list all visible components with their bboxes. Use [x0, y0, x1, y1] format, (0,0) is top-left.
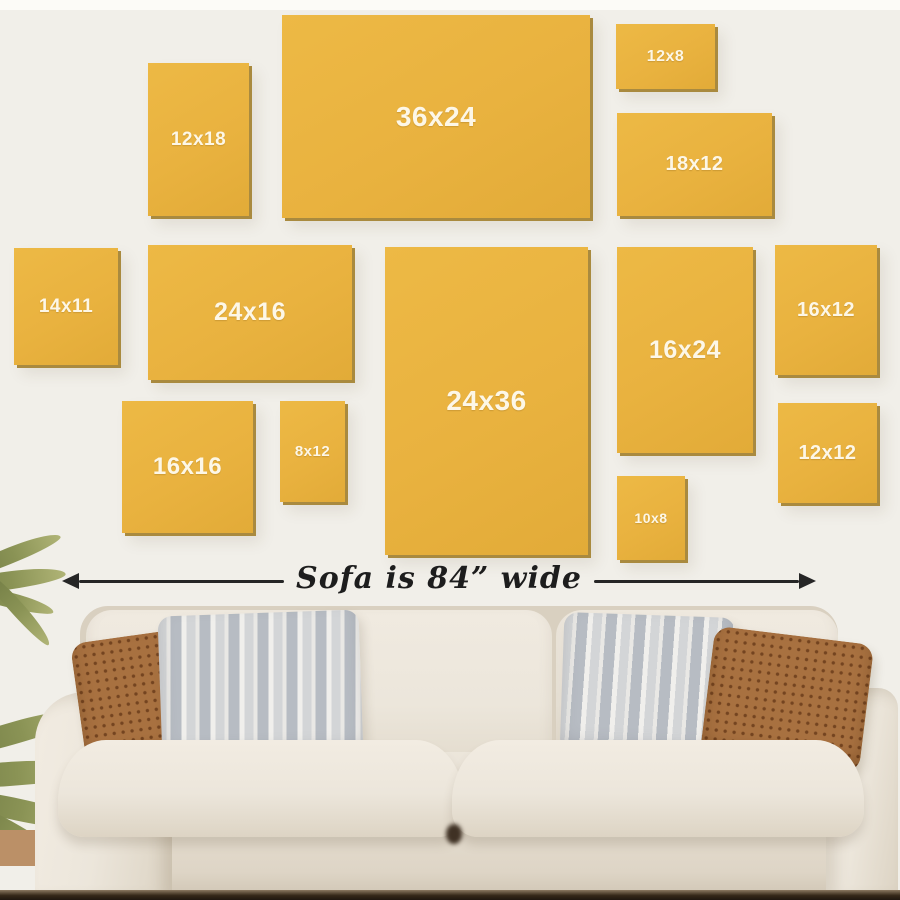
canvas-size-label: 16x24: [649, 336, 721, 365]
canvas-size-14x11: 14x11: [14, 248, 118, 365]
canvas-size-label: 12x18: [171, 129, 226, 151]
canvas-size-16x24: 16x24: [617, 247, 753, 453]
canvas-size-label: 16x12: [797, 299, 855, 322]
arrow-left-icon: [62, 573, 79, 589]
canvas-size-label: 16x16: [153, 453, 222, 481]
sofa-width-arrow: Sofa is 84” wide: [62, 561, 816, 601]
size-grid: 12x1836x2412x818x1214x1124x1624x3616x241…: [0, 0, 900, 900]
canvas-size-guide: Sofa is 84” wide 12x1836x2412x818x1214x1…: [0, 0, 900, 900]
canvas-size-label: 10x8: [634, 510, 667, 526]
canvas-size-label: 24x36: [446, 385, 526, 417]
canvas-size-16x16: 16x16: [122, 401, 253, 533]
canvas-size-36x24: 36x24: [282, 15, 590, 218]
canvas-size-18x12: 18x12: [617, 113, 772, 216]
canvas-size-label: 36x24: [396, 101, 476, 133]
canvas-size-label: 12x12: [798, 442, 856, 465]
canvas-size-label: 24x16: [214, 298, 286, 327]
canvas-size-10x8: 10x8: [617, 476, 685, 560]
canvas-size-12x8: 12x8: [616, 24, 715, 89]
sofa-width-label: Sofa is 84” wide: [296, 561, 582, 596]
canvas-size-24x36: 24x36: [385, 247, 588, 555]
canvas-size-label: 8x12: [295, 443, 330, 460]
canvas-size-16x12: 16x12: [775, 245, 877, 375]
canvas-size-label: 18x12: [665, 153, 723, 176]
arrow-line: [594, 580, 799, 583]
canvas-size-12x12: 12x12: [778, 403, 877, 503]
canvas-size-12x18: 12x18: [148, 63, 249, 216]
canvas-size-label: 12x8: [647, 48, 685, 66]
canvas-size-8x12: 8x12: [280, 401, 345, 502]
arrow-line: [79, 580, 284, 583]
canvas-size-24x16: 24x16: [148, 245, 352, 380]
canvas-size-label: 14x11: [39, 296, 93, 318]
arrow-right-icon: [799, 573, 816, 589]
